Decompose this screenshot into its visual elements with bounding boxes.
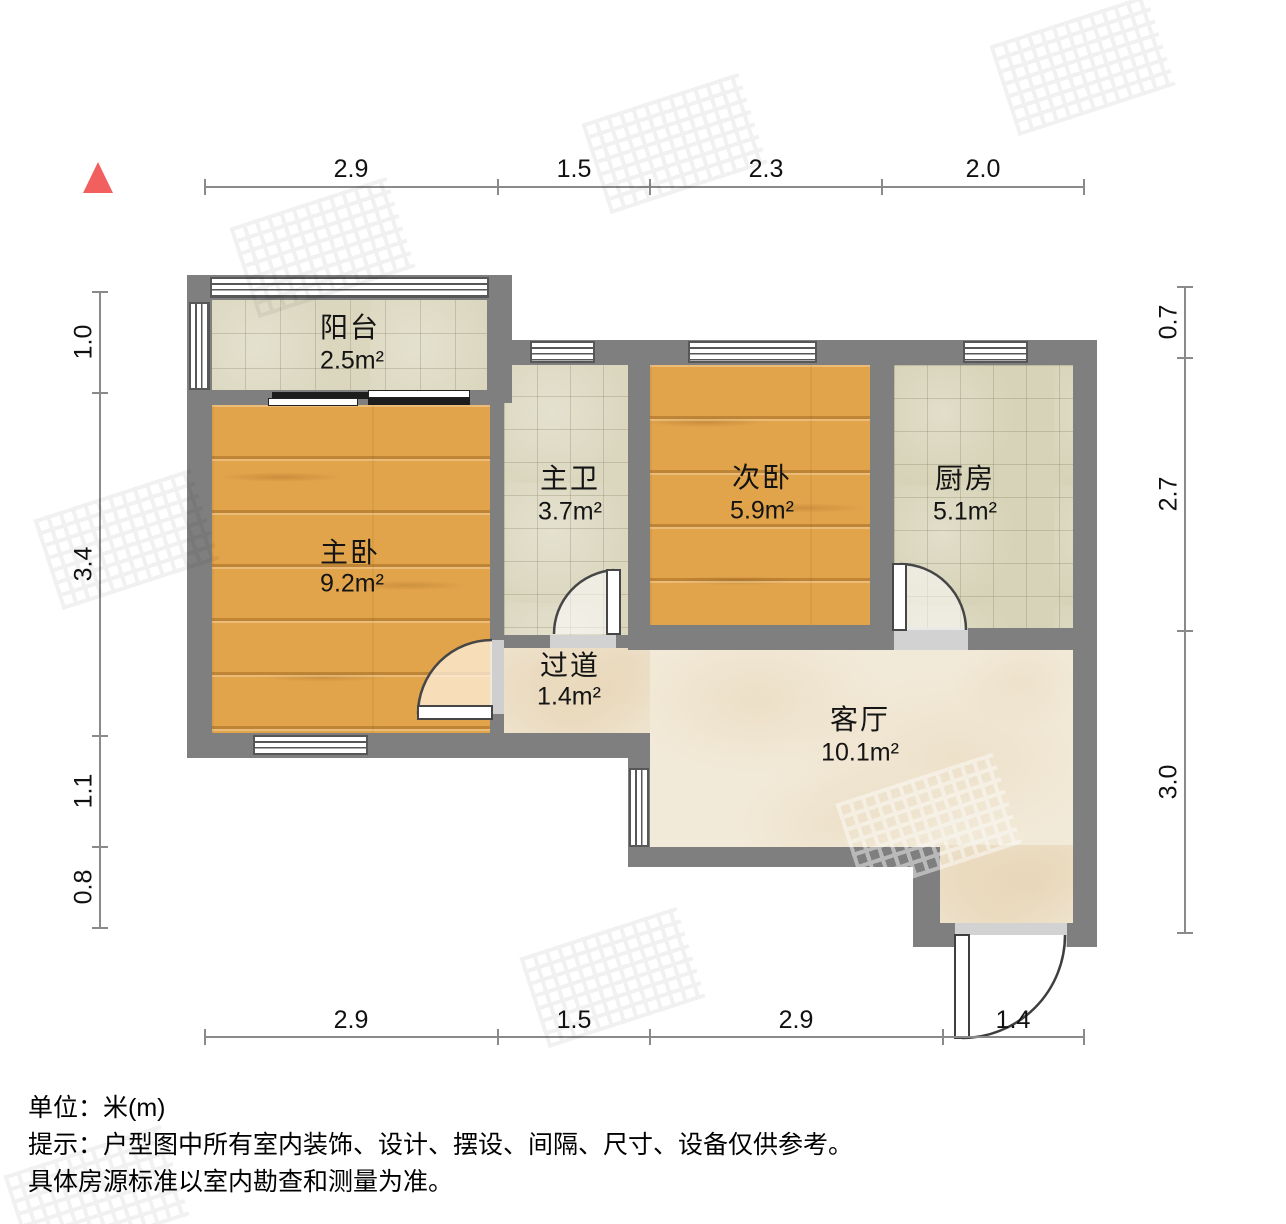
watermark [519,907,705,1048]
dim-tick [497,179,499,195]
watermark [989,0,1175,136]
dim-tick [1083,179,1085,195]
bedroom2-window [688,341,817,363]
dim-tick [1177,357,1193,359]
dim-tick [204,179,206,195]
second-bedroom-label: 次卧 [732,456,792,496]
dim-tick [204,1029,206,1045]
dim-bottom-4: 1.4 [996,1006,1031,1035]
dim-tick [1177,932,1193,934]
kitchen-window [963,341,1028,363]
balcony-label: 阳台 [320,306,380,346]
dim-tick [92,846,108,848]
wall-bedroom-left [187,392,212,757]
watermark [581,73,767,214]
wall-bedroom2-bottom [650,625,870,650]
dim-tick [92,735,108,737]
disclaimer-line1: 提示：户型图中所有室内装饰、设计、摆设、间隔、尺寸、设备仅供参考。 [28,1127,853,1164]
disclaimer-line2: 具体房源标准以室内勘查和测量为准。 [28,1164,853,1201]
wall-bedroom2-kitchen [870,363,894,628]
balcony-area: 2.5m² [320,347,384,376]
living-room-label: 客厅 [830,698,890,738]
footer-notes: 单位：米(m) 提示：户型图中所有室内装饰、设计、摆设、间隔、尺寸、设备仅供参考… [28,1090,853,1201]
dim-bottom-3: 2.9 [779,1006,814,1035]
sliding-door-panel-light-left [268,398,358,406]
master-bedroom-area: 9.2m² [320,570,384,599]
dim-tick [649,1029,651,1045]
dim-tick [881,179,883,195]
master-bath-area: 3.7m² [538,498,602,527]
dim-line-right [1184,287,1186,933]
bedroom-bottom-window [253,735,368,755]
master-bath-label: 主卫 [540,457,600,497]
dim-top-1: 2.9 [334,155,369,184]
dim-tick [1083,1029,1085,1045]
kitchen-door-sill [894,628,968,650]
dim-line-bottom [205,1036,1085,1038]
dim-tick [1177,630,1193,632]
sliding-door-panel-light-right [368,390,470,398]
dim-right-3: 3.0 [1155,765,1184,800]
dim-tick [92,927,108,929]
dim-tick [92,392,108,394]
north-arrow-icon [83,162,113,193]
dim-tick [1177,286,1193,288]
dim-bottom-1: 2.9 [334,1006,369,1035]
master-bedroom-label: 主卧 [320,531,380,571]
second-bedroom-area: 5.9m² [730,497,794,526]
dim-left-4: 0.8 [70,870,99,905]
dim-right-2: 2.7 [1155,477,1184,512]
wall-right-outer [1073,340,1097,947]
wall-bath-bedroom2 [628,363,650,650]
dim-tick [92,291,108,293]
dim-left-3: 1.1 [70,774,99,809]
dim-top-2: 1.5 [557,155,592,184]
dim-line-left [99,292,101,928]
dim-right-1: 0.7 [1155,305,1184,340]
dim-left-1: 1.0 [70,325,99,360]
living-left-window [629,768,649,847]
dim-top-4: 2.0 [966,155,1001,184]
sliding-door-panel-dark-right [368,398,470,405]
dim-tick [497,1029,499,1045]
kitchen-label: 厨房 [935,457,995,497]
entry-door-leaf [955,935,969,1038]
floor-plan-canvas: 阳台 2.5m² 主卧 9.2m² 主卫 3.7m² 次卧 5.9m² 厨房 5… [0,0,1286,1224]
bedroom-door-opening [490,640,504,714]
unit-note: 单位：米(m) [28,1090,853,1127]
balcony-left-window [189,302,210,390]
living-room-area: 10.1m² [821,739,899,768]
kitchen-area: 5.1m² [933,498,997,527]
hallway-area: 1.4m² [537,683,601,712]
entry-door-sill [955,923,1067,947]
dim-tick [942,1029,944,1045]
bath-window [530,341,595,363]
hallway-label: 过道 [540,644,600,684]
